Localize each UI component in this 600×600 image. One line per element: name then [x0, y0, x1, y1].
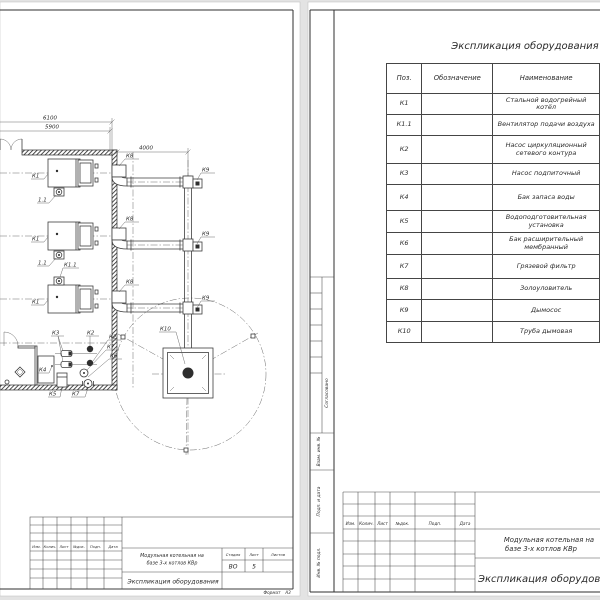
- cell-designation: [422, 279, 493, 300]
- rev-col-list: Лист: [376, 521, 388, 526]
- cell-designation: [422, 185, 493, 211]
- cell-name: Бак запаса воды: [493, 185, 600, 211]
- table-header-row: Поз. Обозначение Наименование: [387, 64, 600, 94]
- cell-designation: [422, 322, 493, 343]
- callout-k8: К8: [126, 217, 134, 223]
- dim-6100: 6100: [43, 116, 57, 122]
- table-row: К8 Золоуловитель: [387, 279, 600, 300]
- cell-designation: [422, 94, 493, 115]
- water-treatment-symbol: [57, 373, 67, 387]
- callout-k7: К7: [107, 345, 115, 351]
- rev-col-data: Дата: [107, 545, 117, 549]
- callout-k1: К1: [32, 237, 39, 243]
- fan-symbol: [54, 251, 64, 259]
- circulation-pump-symbol: [87, 360, 93, 366]
- table-row: К9 Дымосос: [387, 300, 600, 322]
- cell-pos: К6: [387, 233, 422, 255]
- guy-anchor: [184, 448, 188, 452]
- table-header-designation: Обозначение: [422, 64, 493, 94]
- expansion-tank-symbol: [80, 369, 88, 377]
- makeup-pump-symbol: [61, 362, 72, 368]
- callout-k9: К9: [202, 168, 210, 174]
- smoke-exhauster-symbol: [193, 179, 202, 188]
- cell-name: Грязевой фильтр: [493, 255, 600, 279]
- cell-designation: [422, 233, 493, 255]
- callout-k9: К9: [202, 232, 210, 238]
- format-value: А3: [284, 590, 291, 595]
- boilers: [48, 159, 98, 313]
- table-row: К10 Труба дымовая: [387, 322, 600, 343]
- format-label: Формат: [264, 590, 282, 595]
- cell-pos: К10: [387, 322, 422, 343]
- rev-col-ndok: №док.: [395, 521, 410, 526]
- cad-viewer: 6100 5900 4000: [0, 0, 600, 600]
- cell-name: Насос циркуляционный сетевого контура: [493, 136, 600, 164]
- smoke-exhauster-symbol: [193, 305, 202, 314]
- dim-5900: 5900: [45, 125, 59, 131]
- rev-col-podp: Подп.: [429, 521, 442, 526]
- cell-designation: [422, 300, 493, 322]
- project-title-line2: базе 3-х котлов КВр: [505, 545, 577, 553]
- cell-name: Труба дымовая: [493, 322, 600, 343]
- callout-k9: К9: [202, 296, 210, 302]
- chimney-foundation: [163, 348, 213, 398]
- boiler-symbol: [48, 222, 98, 250]
- doc-title: Экспликация оборудования: [126, 578, 218, 586]
- margin-label-inv-podl: Инв. № подл.: [316, 547, 322, 577]
- ash-catcher-symbol: [112, 165, 126, 177]
- cell-name: Дымосос: [493, 300, 600, 322]
- table-row: К7 Грязевой фильтр: [387, 255, 600, 279]
- cell-pos: К3: [387, 164, 422, 185]
- rev-col-izm: Изм.: [32, 545, 40, 549]
- cell-pos: К7: [387, 255, 422, 279]
- cell-name: Бак расширительный мембранный: [493, 233, 600, 255]
- callout-k7: К7: [72, 392, 80, 398]
- cell-pos: К5: [387, 211, 422, 233]
- cell-designation: [422, 211, 493, 233]
- callout-k8: К8: [126, 154, 134, 160]
- callout-k10: К10: [160, 327, 171, 333]
- fan-symbol: [54, 188, 64, 196]
- cell-name: Водоподготовительная установка: [493, 211, 600, 233]
- table-row: К3 Насос подпиточный: [387, 164, 600, 185]
- sheet-number: 5: [252, 564, 256, 571]
- cell-designation: [422, 136, 493, 164]
- margin-label-vzam-inv: Взам. инв. №: [316, 436, 322, 466]
- table-row: К4 Бак запаса воды: [387, 185, 600, 211]
- guy-anchor: [121, 335, 125, 339]
- rev-col-podp: Подп.: [90, 545, 101, 549]
- rev-col-kolich: Колич.: [44, 545, 57, 549]
- callout-k1-1: 1.1: [38, 198, 47, 204]
- cell-designation: [422, 115, 493, 136]
- callout-k5: К5: [49, 392, 57, 398]
- project-title-line1: Модульная котельная на: [140, 553, 204, 559]
- equipment-table-title: Экспликация оборудования: [440, 41, 600, 52]
- circulation-pump-symbol: [87, 346, 93, 352]
- table-row: К2 Насос циркуляционный сетевого контура: [387, 136, 600, 164]
- rev-col-list: Лист: [58, 545, 69, 549]
- callout-k2: К2: [109, 335, 117, 341]
- callout-k4: К4: [39, 368, 47, 374]
- callout-k6: К6: [110, 354, 118, 360]
- doc-title: Экспликация оборудования: [477, 573, 600, 585]
- guy-anchor: [251, 334, 255, 338]
- project-title-line1: Модульная котельная на: [504, 536, 594, 544]
- table-row: К1.1 Вентилятор подачи воздуха: [387, 115, 600, 136]
- left-sheet-paper: [0, 2, 300, 596]
- callout-k3: К3: [52, 331, 60, 337]
- equipment-table: Поз. Обозначение Наименование К1 Стально…: [386, 63, 600, 343]
- table-row: К1 Стальной водогрейный котёл: [387, 94, 600, 115]
- project-title-line2: базе 3-х котлов КВр: [147, 561, 198, 567]
- callout-k1: К1: [32, 300, 39, 306]
- cell-pos: К1: [387, 94, 422, 115]
- table-row: К6 Бак расширительный мембранный: [387, 233, 600, 255]
- ash-catcher-symbol: [112, 228, 126, 240]
- stage-value: ВО: [229, 564, 238, 571]
- stage-label: Стадия: [226, 552, 241, 557]
- cell-name: Насос подпиточный: [493, 164, 600, 185]
- sheets-label: Листов: [270, 552, 286, 557]
- cell-pos: К9: [387, 300, 422, 322]
- cell-designation: [422, 164, 493, 185]
- margin-label-podp-data: Подп. и дата: [316, 486, 322, 516]
- cell-pos: К4: [387, 185, 422, 211]
- cell-pos: К8: [387, 279, 422, 300]
- callout-k8: К8: [126, 280, 134, 286]
- chimney-pipe-symbol: [183, 368, 194, 379]
- cell-pos: К1.1: [387, 115, 422, 136]
- rev-col-data: Дата: [459, 521, 471, 526]
- callout-k1: К1: [32, 174, 39, 180]
- callout-k1-1-full: К1.1: [64, 263, 77, 269]
- ash-catcher-symbol: [112, 291, 126, 303]
- sheet-label: Лист: [248, 552, 259, 557]
- cell-name: Стальной водогрейный котёл: [493, 94, 600, 115]
- cell-designation: [422, 255, 493, 279]
- boiler-symbol: [48, 159, 98, 187]
- dim-4000: 4000: [139, 146, 153, 152]
- table-row: К5 Водоподготовительная установка: [387, 211, 600, 233]
- rev-col-kolich: Колич.: [359, 521, 374, 526]
- drain-symbol: [5, 380, 9, 384]
- cell-name: Золоуловитель: [493, 279, 600, 300]
- cell-name: Вентилятор подачи воздуха: [493, 115, 600, 136]
- rev-col-ndok: №док.: [72, 545, 85, 549]
- margin-label-soglasovano: Согласовано: [324, 378, 330, 408]
- callout-k2: К2: [87, 331, 95, 337]
- callout-k1-1: 1.1: [38, 261, 47, 267]
- table-header-name: Наименование: [493, 64, 600, 94]
- rev-col-izm: Изм.: [346, 521, 356, 526]
- table-header-pos: Поз.: [387, 64, 422, 94]
- boiler-symbol: [48, 285, 98, 313]
- cell-pos: К2: [387, 136, 422, 164]
- fan-symbol: [54, 277, 64, 285]
- makeup-pump-symbol: [61, 351, 72, 357]
